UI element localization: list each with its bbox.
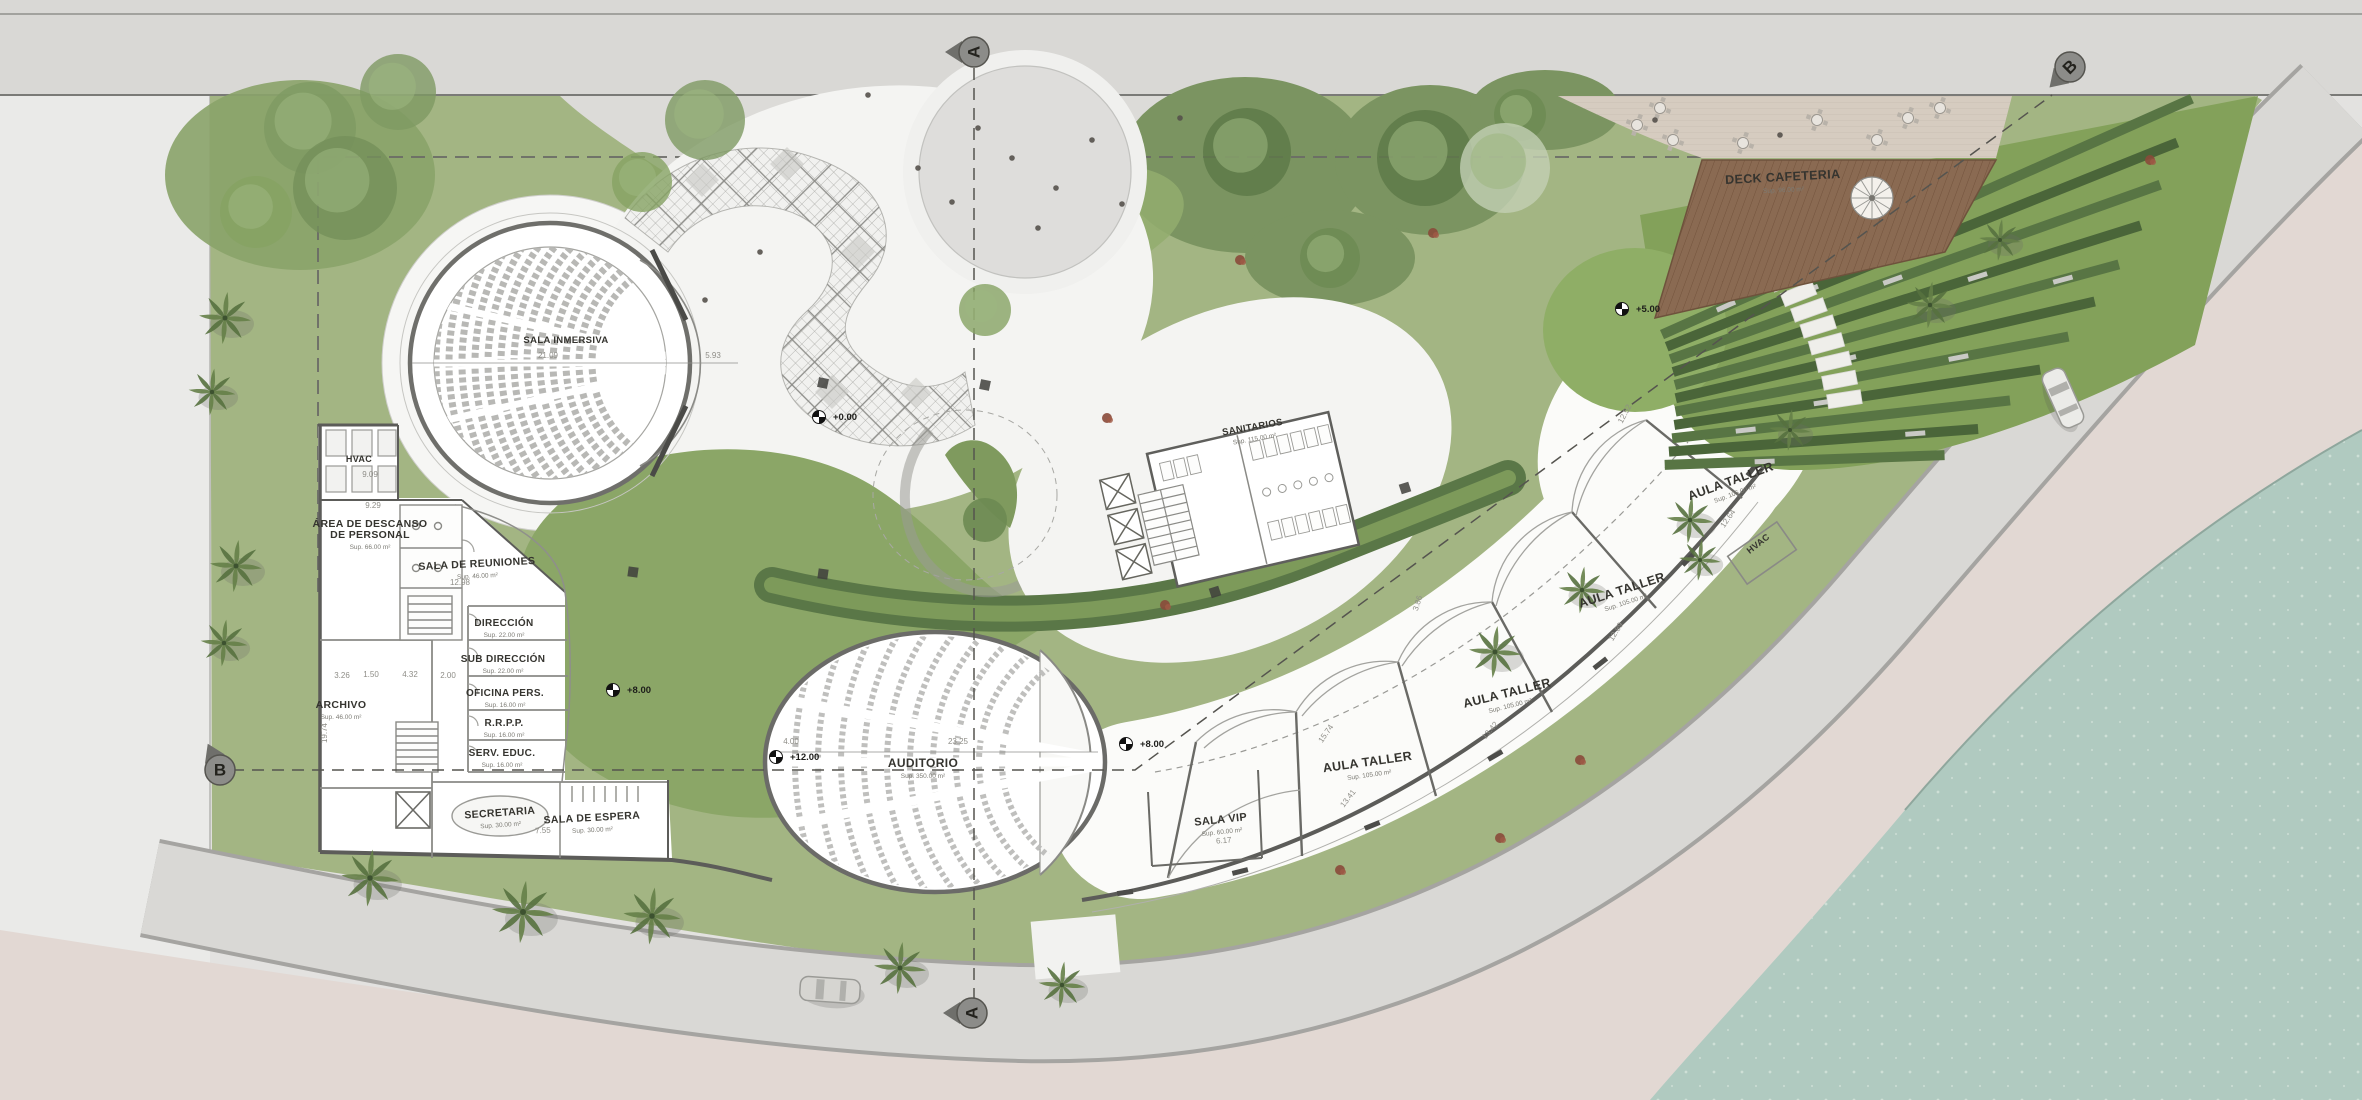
room-label: R.R.P.P.Sup. 16.00 m²: [484, 718, 526, 739]
dimension-text: 7.55: [535, 826, 552, 836]
person-dot: [865, 92, 871, 98]
room-area: Sup. 16.00 m²: [484, 732, 526, 739]
west-elevator: [396, 792, 430, 828]
room-name: SERV. EDUC.: [469, 748, 536, 759]
dimension-text: 9.09: [362, 470, 378, 479]
person-dot: [757, 249, 763, 255]
west-stair: [396, 722, 438, 772]
level-marker: +12.00: [770, 751, 820, 764]
dimension-text: 4.00: [783, 737, 799, 746]
tree: [612, 152, 672, 212]
level-marker: +8.00: [1120, 738, 1165, 751]
tree: [360, 54, 436, 130]
person-dot: [1177, 115, 1183, 121]
floor-plan-canvas: 21.095.939.099.2912.983.261.504.322.0019…: [0, 0, 2362, 1100]
tree: [1203, 108, 1291, 196]
person-dot: [1119, 201, 1125, 207]
dimension-text: 1.50: [363, 670, 379, 679]
person-dot: [975, 125, 981, 131]
person-dot: [949, 199, 955, 205]
person-dot: [1652, 117, 1658, 123]
person-dot: [915, 165, 921, 171]
room-name: DIRECCIÓN: [474, 616, 533, 629]
tree: [665, 80, 745, 160]
dimension-text: 6.17: [1216, 835, 1233, 845]
room-name: HVAC: [346, 454, 372, 464]
room-label: HVAC: [346, 454, 372, 464]
level-text: +0.00: [833, 412, 857, 423]
tree: [1460, 123, 1550, 213]
dimension-text: 23.25: [948, 737, 969, 746]
tree: [1377, 110, 1473, 206]
dimension-text: 21.09: [538, 351, 559, 360]
level-marker: +0.00: [813, 411, 858, 424]
section-letter: A: [965, 46, 984, 58]
section-letter: A: [963, 1007, 982, 1019]
level-marker: +5.00: [1616, 303, 1661, 316]
room-name: R.R.P.P.: [484, 718, 523, 729]
person-dot: [1089, 137, 1095, 143]
room-name: AUDITORIO: [888, 756, 958, 770]
room-label: SALA INMERSIVA: [523, 335, 608, 346]
level-text: +12.00: [790, 752, 819, 763]
section-letter: B: [214, 761, 226, 780]
room-label: ARCHIVOSup. 46.00 m²: [316, 699, 367, 721]
dimension-text: 2.00: [440, 671, 456, 680]
room-name: SALA INMERSIVA: [523, 335, 608, 346]
dimension-text: 5.93: [705, 351, 721, 360]
pedestrian-crossing: [1031, 914, 1121, 979]
person-dot: [1009, 155, 1015, 161]
tree: [220, 176, 292, 248]
tree: [293, 136, 397, 240]
site-plan-drawing: 21.095.939.099.2912.983.261.504.322.0019…: [0, 0, 2362, 1100]
circular-plaza: [919, 66, 1131, 278]
room-name: OFICINA PERS.: [466, 688, 544, 699]
level-marker: +8.00: [607, 684, 652, 697]
room-name: ARCHIVO: [316, 699, 367, 711]
room-area: Sup. 350.00 m²: [901, 773, 946, 780]
dimension-text: 4.32: [402, 670, 418, 679]
room-area: Sup. 66.00 m²: [350, 544, 392, 551]
room-area: Sup. 16.00 m²: [485, 702, 527, 709]
room-area: Sup. 22.00 m²: [484, 632, 526, 639]
room-area: Sup. 22.00 m²: [483, 668, 525, 675]
room-name-line2: DE PERSONAL: [330, 529, 410, 541]
person-dot: [1053, 185, 1059, 191]
room-name: SUB DIRECCIÓN: [461, 652, 546, 665]
person-dot: [702, 297, 708, 303]
tree: [1300, 228, 1360, 288]
level-text: +8.00: [1140, 739, 1164, 750]
tree: [959, 284, 1011, 336]
level-text: +8.00: [627, 685, 651, 696]
level-text: +5.00: [1636, 304, 1660, 315]
room-area: Sup. 16.00 m²: [482, 762, 524, 769]
dimension-text: 9.29: [365, 501, 381, 510]
person-dot: [1777, 132, 1783, 138]
dimension-text: 3.26: [334, 671, 350, 680]
spiral-stair: [1851, 177, 1893, 219]
dimension-text: 19.74: [320, 722, 329, 743]
room-area: Sup. 46.00 m²: [321, 714, 363, 721]
person-dot: [1035, 225, 1041, 231]
